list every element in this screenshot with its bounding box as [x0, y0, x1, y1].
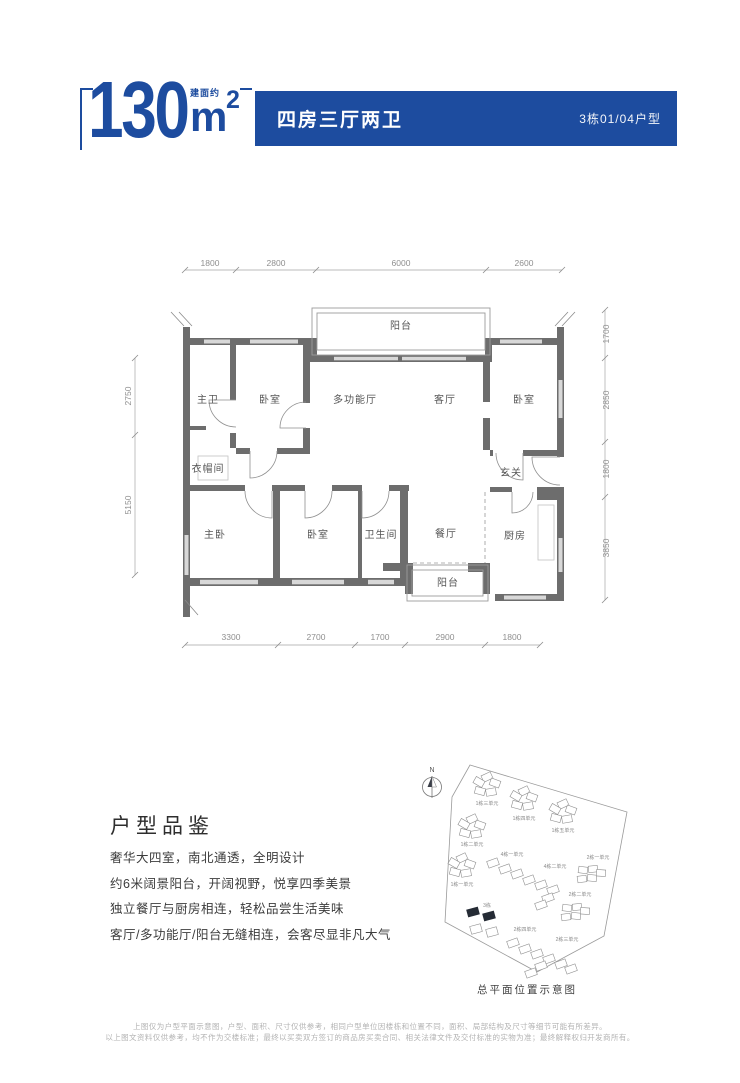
room-cloakroom: 衣帽间 [192, 462, 225, 475]
dim-bottom-2: 2700 [307, 632, 326, 642]
dim-right-3: 1800 [601, 459, 611, 478]
room-bathroom: 卫生间 [365, 528, 398, 541]
header-bracket-vertical [80, 88, 82, 150]
header-banner: 四房三厅两卫 3栋01/04户型 [255, 91, 677, 146]
dim-top-1: 1800 [201, 258, 220, 268]
area-unit-block: 建面约 m [190, 86, 227, 135]
disclaimer-line-1: 上图仅为户型平面示意图，户型、面积、尺寸仅供参考，相同户型单位因楼栋和位置不同，… [0, 1021, 740, 1032]
site-building-label: 1栋四单元 [513, 815, 536, 822]
room-bedroom-top: 卧室 [259, 393, 281, 406]
dim-bottom-1: 3300 [222, 632, 241, 642]
room-master-bath: 主卫 [197, 394, 219, 406]
room-living: 客厅 [434, 393, 456, 406]
dimension-lines [132, 267, 608, 648]
site-building-label: 2栋三单元 [556, 936, 579, 943]
dim-top-2: 2800 [267, 258, 286, 268]
description-title: 户型品鉴 [110, 810, 214, 840]
site-building-label: 1栋一单元 [451, 881, 474, 888]
room-multifunction: 多功能厅 [333, 393, 377, 406]
disclaimer: 上图仅为户型平面示意图，户型、面积、尺寸仅供参考，相同户型单位因楼栋和位置不同，… [0, 1021, 740, 1043]
compass-icon: N [423, 767, 442, 798]
site-buildings [448, 772, 606, 978]
site-building-label: 2栋二单元 [569, 891, 592, 898]
description-lines: 奢华大四室，南北通透，全明设计 约6米阔景阳台，开阔视野，悦享四季美景 独立餐厅… [110, 846, 391, 948]
compass-n-label: N [429, 767, 434, 774]
dim-bottom-4: 2900 [436, 632, 455, 642]
room-kitchen: 厨房 [504, 529, 526, 542]
dashed-dividers [413, 492, 485, 563]
disclaimer-line-2: 以上图文资料仅供参考，均不作为交楼标准；最终以买卖双方签订的商品房买卖合同、相关… [0, 1032, 740, 1043]
area-number: 130 [88, 70, 188, 150]
description-line-3: 独立餐厅与厨房相连，轻松品尝生活美味 [110, 897, 391, 923]
dim-top-4: 2600 [515, 258, 534, 268]
dim-right-1: 1700 [601, 324, 611, 343]
dim-right-2: 2850 [601, 390, 611, 409]
room-bedroom-bottom: 卧室 [307, 528, 329, 541]
room-balcony-top: 阳台 [390, 319, 412, 332]
area-unit: m [190, 99, 227, 135]
siteplan-drawing: N 1栋三单元1栋四单元1栋五单元1栋二单元4栋一单元4栋二单元1栋一单元2栋一… [415, 735, 685, 1005]
room-dining: 餐厅 [435, 527, 457, 540]
header-bracket-top-right [240, 88, 252, 90]
dim-top-3: 6000 [392, 258, 411, 268]
site-building-label: 2栋四单元 [514, 926, 537, 933]
dim-right-4: 3850 [601, 538, 611, 557]
site-building-label: 1栋三单元 [476, 800, 499, 807]
site-building-label: 1栋二单元 [461, 841, 484, 848]
description-line-1: 奢华大四室，南北通透，全明设计 [110, 846, 391, 872]
dim-left-1: 2750 [123, 386, 133, 405]
site-building-label: 3栋 [483, 902, 491, 909]
floorplan-page: 130 建面约 m 2 四房三厅两卫 3栋01/04户型 [0, 0, 740, 1083]
room-foyer: 玄关 [500, 466, 522, 479]
description-line-4: 客厅/多功能厅/阳台无缝相连，会客尽显非凡大气 [110, 923, 391, 949]
area-superscript: 2 [226, 86, 240, 115]
layout-title: 四房三厅两卫 [277, 105, 403, 132]
dim-left-2: 5150 [123, 495, 133, 514]
description-line-2: 约6米阔景阳台，开阔视野，悦享四季美景 [110, 872, 391, 898]
room-balcony-bottom: 阳台 [437, 576, 459, 589]
site-building-label: 4栋一单元 [501, 851, 524, 858]
dim-bottom-5: 1800 [503, 632, 522, 642]
site-building-label: 1栋五单元 [552, 827, 575, 834]
door-swings [209, 400, 560, 518]
dim-bottom-3: 1700 [371, 632, 390, 642]
siteplan-caption: 总平面位置示意图 [477, 983, 577, 996]
floorplan-drawing: 1800 2800 6000 2600 3300 2700 1700 2900 … [100, 250, 640, 670]
unit-info: 3栋01/04户型 [579, 110, 661, 127]
site-building-label: 4栋二单元 [544, 863, 567, 870]
room-bedroom-right: 卧室 [513, 393, 535, 406]
site-building-label: 2栋一单元 [587, 854, 610, 861]
room-master-bedroom: 主卧 [204, 528, 226, 541]
